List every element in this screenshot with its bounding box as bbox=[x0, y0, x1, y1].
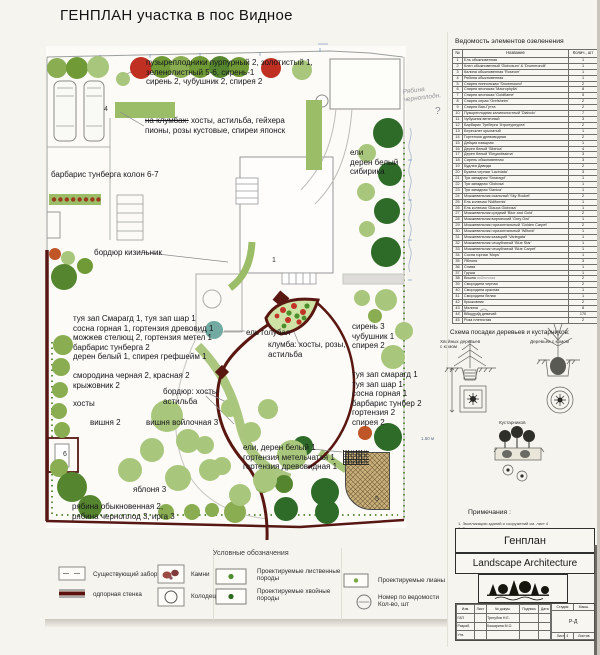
dimension-note: 1.50 м bbox=[421, 436, 434, 441]
pencil-question-mark: ? bbox=[435, 106, 441, 117]
legend-label-wall: одпорная стенка bbox=[93, 591, 142, 598]
gate-structure bbox=[47, 212, 60, 238]
hosta-border-band bbox=[198, 346, 290, 478]
building-2 bbox=[330, 59, 400, 109]
shed-6 bbox=[48, 438, 78, 472]
existing-fence-icon bbox=[58, 566, 86, 581]
barberry-hedge bbox=[49, 194, 101, 205]
flower-bed-4 bbox=[115, 102, 175, 118]
legend-label-well: Колодец bbox=[191, 593, 216, 600]
legend-label-liana: Проектируемые лианы bbox=[378, 577, 445, 584]
parked-cars bbox=[54, 81, 104, 141]
legend: Условные обозначения Существующий забор … bbox=[45, 548, 450, 620]
legend-label-deciduous: Проектируемые лиственные породы bbox=[257, 568, 345, 582]
retaining-steps bbox=[117, 195, 143, 240]
legend-label-conifer: Проектируемые хвойные породы bbox=[257, 588, 345, 602]
item-number-symbol-icon bbox=[355, 593, 373, 611]
genplan-sheet: ГЕНПЛАН участка в пос Видное bbox=[0, 0, 600, 655]
house-1 bbox=[240, 157, 333, 273]
stones-icon bbox=[157, 564, 185, 584]
legend-label-stones: Камни bbox=[191, 571, 210, 578]
well-icon bbox=[157, 587, 185, 607]
flower-bed-klumba bbox=[266, 299, 318, 334]
liana-symbol-icon bbox=[343, 573, 369, 588]
retaining-wall-icon bbox=[58, 589, 86, 598]
flower-bed-strip bbox=[306, 100, 322, 170]
deciduous-symbol-icon bbox=[215, 568, 247, 585]
legend-label-number: Номер по ведомости Кол-во, шт bbox=[378, 594, 458, 608]
scan-shadow bbox=[45, 619, 447, 627]
curb-path-right bbox=[308, 302, 354, 468]
paved-patio-edge bbox=[343, 450, 369, 465]
legend-title: Условные обозначения bbox=[213, 550, 289, 557]
walkway-strip bbox=[343, 274, 404, 284]
conifer-symbol-icon bbox=[215, 588, 247, 605]
legend-label-fence: Существующий забор bbox=[93, 571, 157, 578]
